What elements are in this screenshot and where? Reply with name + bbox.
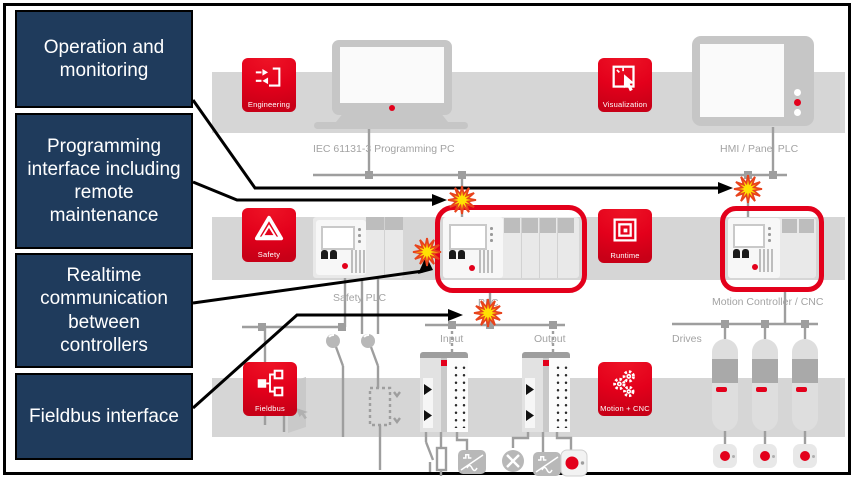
motor-pins xyxy=(732,455,735,458)
callout-fieldbus-interface: Fieldbus interface xyxy=(15,373,193,460)
motion-cnc-icon xyxy=(608,366,642,400)
tile-engineering: Engineering xyxy=(242,58,296,112)
fieldbus-tile-label: Fieldbus xyxy=(243,404,297,413)
laptop-display xyxy=(340,47,444,103)
drive-1 xyxy=(712,339,738,431)
callout-1-text: Operation and monitoring xyxy=(25,36,183,82)
safety-plc-connector-2 xyxy=(330,250,337,259)
motion-controller-highlight xyxy=(720,206,824,292)
safety-plc-leds xyxy=(358,228,361,231)
hmi-button-2 xyxy=(794,99,801,106)
input-cap xyxy=(420,352,468,358)
hmi-button-1 xyxy=(794,89,801,96)
safety-plc-vents xyxy=(351,250,353,273)
callout-operation-monitoring: Operation and monitoring xyxy=(15,10,193,108)
plc-label: PLC xyxy=(478,297,498,309)
tile-fieldbus: Fieldbus xyxy=(243,362,297,416)
drive-2 xyxy=(752,339,778,431)
tile-visualization: Visualization xyxy=(598,58,652,112)
callout-4-text: Fieldbus interface xyxy=(29,405,179,428)
fieldbus-icon xyxy=(253,366,287,400)
callout-programming-interface: Programming interface including remote m… xyxy=(15,113,193,249)
input-terminals xyxy=(450,362,466,428)
laptop-camera-dot xyxy=(389,105,395,111)
laptop-deck xyxy=(336,115,448,122)
visualization-tile-label: Visualization xyxy=(598,100,652,109)
safety-icon xyxy=(252,212,286,246)
output-label: Output xyxy=(534,333,566,345)
hmi-button-3 xyxy=(794,109,801,116)
callout-realtime-communication: Realtime communication between controlle… xyxy=(15,253,193,368)
motion-cnc-tile-label: Motion + CNC xyxy=(598,404,652,413)
safety-plc-module-sep xyxy=(384,217,385,278)
input-label: Input xyxy=(440,333,463,345)
visualization-icon xyxy=(608,62,642,96)
callout-3-text: Realtime communication between controlle… xyxy=(25,264,183,357)
output-module xyxy=(522,352,570,432)
tile-motion: Motion + CNC xyxy=(598,362,652,416)
tile-safety: Safety xyxy=(242,208,296,262)
plc-highlight xyxy=(435,205,587,293)
tile-runtime: Runtime xyxy=(598,209,652,263)
input-module xyxy=(420,352,468,432)
safety-plc-connector-1 xyxy=(321,250,328,259)
safety-tile-label: Safety xyxy=(242,250,296,259)
drive-indicators xyxy=(716,387,727,392)
safety-plc-led xyxy=(342,263,348,269)
engineering-icon xyxy=(252,62,286,94)
programming-pc-label: IEC 61131-3 Programming PC xyxy=(313,143,455,155)
output-terminals xyxy=(552,362,568,428)
hmi-label: HMI / Panel PLC xyxy=(720,143,798,155)
engineering-tile-label: Engineering xyxy=(242,100,296,109)
drive-bands xyxy=(712,359,738,383)
diagram-canvas: IEC 61131-3 Programming PC HMI / Panel P… xyxy=(0,0,854,482)
drive-3 xyxy=(792,339,818,431)
drives-label: Drives xyxy=(672,333,702,345)
callout-2-text: Programming interface including remote m… xyxy=(25,135,183,228)
runtime-icon xyxy=(608,213,642,247)
hmi-display xyxy=(700,44,784,117)
motor-3 xyxy=(793,444,817,468)
motor-dots xyxy=(720,451,730,461)
safety-plc-label: Safety PLC xyxy=(333,292,386,304)
safety-plc-screen xyxy=(321,226,355,250)
runtime-tile-label: Runtime xyxy=(598,251,652,260)
motor-2 xyxy=(753,444,777,468)
motion-controller-label: Motion Controller / CNC xyxy=(712,296,823,308)
output-cap xyxy=(522,352,570,358)
laptop-base xyxy=(314,122,468,129)
